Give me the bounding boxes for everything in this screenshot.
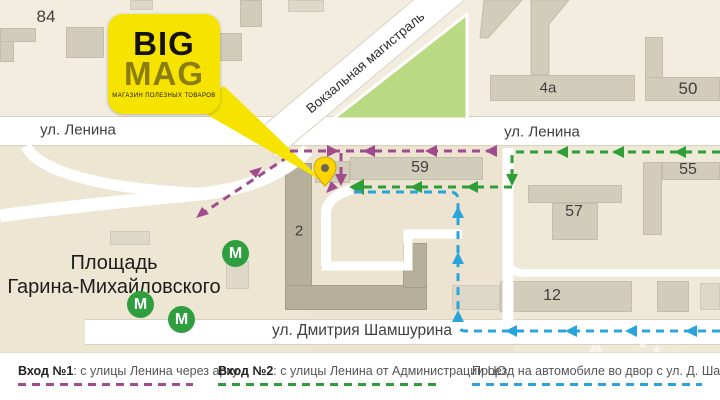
street-shamshurina-label: ул. Дмитрия Шамшурина (272, 322, 452, 340)
legend-entrance1-text: : с улицы Ленина через арку (73, 364, 238, 378)
arrowhead (425, 145, 437, 157)
legend-item-entrance2: Вход №2: с улицы Ленина от Администрации… (218, 364, 440, 386)
legend-dash-entrance2 (218, 383, 440, 386)
route-car-street (458, 324, 720, 331)
arrowhead (485, 145, 497, 157)
logo-line2: MAG (124, 59, 204, 89)
metro-icon: М (222, 240, 249, 267)
building (480, 0, 522, 38)
arrowhead (565, 325, 577, 337)
road-courtyard-entry (326, 189, 352, 266)
legend-dash-entrance1 (18, 383, 193, 386)
arrowhead (452, 252, 464, 264)
building-2-label: 2 (295, 223, 303, 240)
building-55-label: 55 (679, 161, 697, 179)
park-triangle (333, 14, 467, 119)
road-courtyard-ring (322, 234, 462, 266)
street-lenina-label-left: ул. Ленина (40, 122, 116, 139)
location-pin-hole (321, 164, 329, 172)
metro-letter: М (175, 311, 188, 329)
legend-dash-car (472, 383, 702, 386)
arrowhead (335, 174, 347, 186)
building-57-label: 57 (565, 203, 583, 221)
arrowhead (674, 146, 686, 158)
building (531, 0, 569, 75)
metro-letter: М (134, 296, 147, 314)
legend-text: Вход №1: с улицы Ленина через арку (18, 364, 193, 378)
arrowhead (612, 146, 624, 158)
arrowhead (327, 145, 339, 157)
legend-entrance1-bold: Вход №1 (18, 364, 73, 378)
square-name-line2: Гарина-Михайловского (2, 276, 226, 300)
road-above-12 (508, 258, 720, 273)
legend-item-entrance1: Вход №1: с улицы Ленина через арку (18, 364, 193, 386)
legend-text: Вход №2: с улицы Ленина от Администрации… (218, 364, 440, 378)
arrowhead (466, 181, 478, 193)
arrowhead (556, 146, 568, 158)
arrowhead (363, 145, 375, 157)
building-4a-label: 4а (540, 80, 557, 97)
square-name: Площадь Гарина-Михайловского (2, 252, 226, 299)
legend-item-car: Проезд на автомобиле во двор с ул. Д. Ша… (472, 364, 702, 386)
building-12-label: 12 (543, 287, 561, 305)
map-canvas: Вокзальная магистраль (0, 0, 720, 400)
arrowhead (452, 310, 464, 322)
legend-entrance2-bold: Вход №2 (218, 364, 273, 378)
legend-bar: Вход №1: с улицы Ленина через арку Вход … (0, 352, 720, 400)
bigmag-logo: BIG MAG МАГАЗИН ПОЛЕЗНЫХ ТОВАРОВ (108, 14, 220, 114)
arrowhead (196, 207, 209, 218)
building-50-label: 50 (679, 79, 698, 99)
road-square-2 (26, 146, 195, 193)
metro-letter: М (229, 245, 242, 263)
logo-tagline: МАГАЗИН ПОЛЕЗНЫХ ТОВАРОВ (112, 93, 215, 99)
metro-icon: М (127, 291, 154, 318)
building-59-label: 59 (411, 159, 429, 177)
metro-icon: М (168, 306, 195, 333)
building-84-label: 84 (37, 7, 56, 27)
legend-text: Проезд на автомобиле во двор с ул. Д. Ша… (472, 364, 702, 378)
square-name-line1: Площадь (2, 252, 226, 276)
arrowhead (452, 206, 464, 218)
legend-car-text: Проезд на автомобиле во двор с ул. Д. Ша… (472, 364, 720, 378)
street-lenina-label-right: ул. Ленина (504, 124, 580, 141)
